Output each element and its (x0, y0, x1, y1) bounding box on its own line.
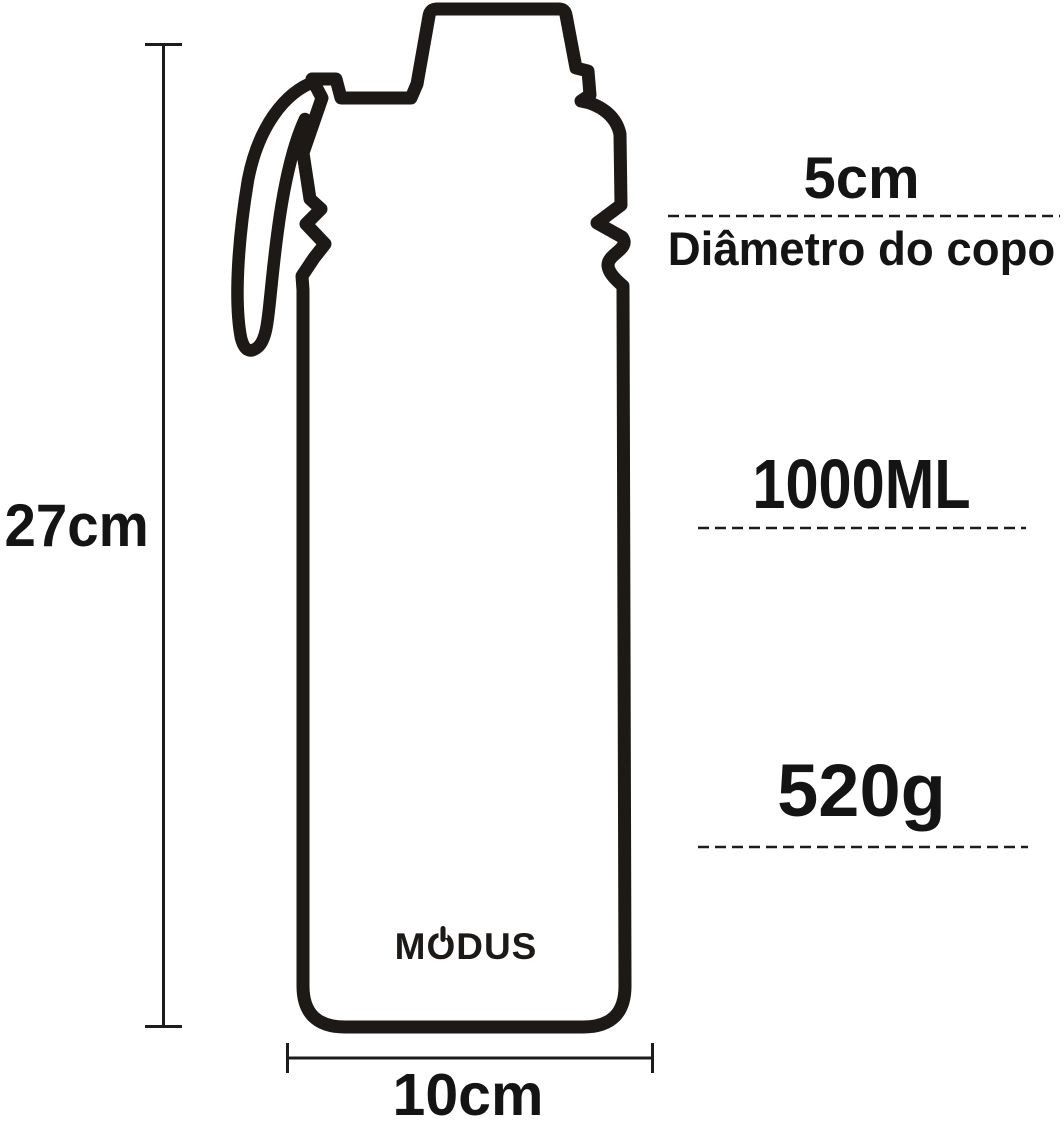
width-label: 10cm (318, 1066, 618, 1122)
bottle-outline-drawing (302, 9, 625, 1027)
height-dimension-line (145, 45, 182, 1027)
brand-logo-text: MODUS (395, 928, 538, 965)
capacity-label: 1000ML (690, 449, 1033, 519)
weight-label: 520g (660, 754, 1063, 828)
spec-column: 5cm Diâmetro do copo 1000ML 520g (660, 0, 1063, 1122)
height-label: 27cm (5, 496, 148, 556)
product-dimension-diagram: MODUS 27cm 10cm 5cm Diâmetro do copo 100… (0, 0, 1063, 1122)
brand-logo: MODUS (366, 928, 566, 965)
diameter-caption-label: Diâmetro do copo (666, 225, 1057, 272)
diameter-value-label: 5cm (660, 150, 1063, 208)
